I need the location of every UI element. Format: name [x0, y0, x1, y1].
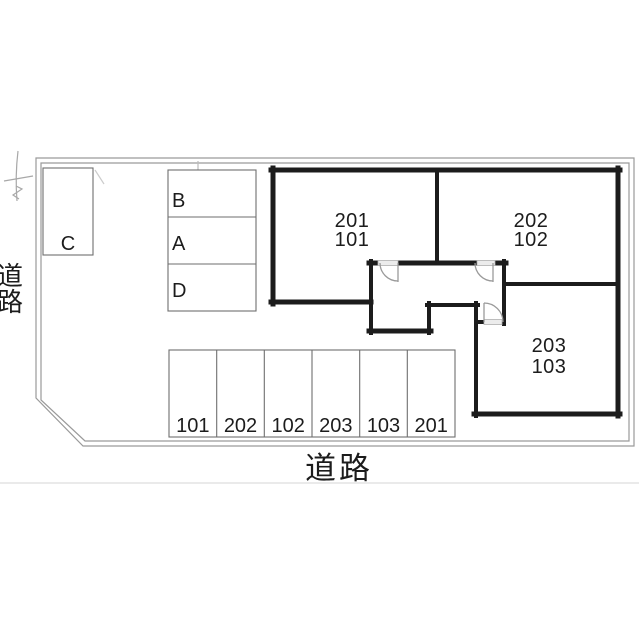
road-label-bottom: 道路	[305, 451, 373, 486]
space-label-d: D	[172, 280, 186, 302]
stall-label-1: 101	[176, 415, 209, 437]
stall-label-5: 103	[367, 415, 400, 437]
space-label-b: B	[172, 190, 185, 212]
road-label-left-char-2: 路	[0, 287, 23, 317]
unit-label-203: 203	[532, 335, 567, 357]
floor-plan-canvas: 201 101 202 102 203 103 C B A D 101 202 …	[0, 0, 639, 640]
door-sill	[477, 261, 495, 266]
door-sill	[378, 261, 398, 266]
stall-label-2: 202	[224, 415, 257, 437]
sketch-faint-stroke	[95, 170, 104, 184]
road-label-left: 道 路	[0, 261, 23, 317]
space-label-a: A	[172, 233, 186, 255]
sketch-hook	[13, 186, 22, 199]
stall-label-4: 203	[319, 415, 352, 437]
stall-label-6: 201	[415, 415, 448, 437]
unit-label-102: 102	[514, 229, 549, 251]
unit-label-101: 101	[335, 229, 370, 251]
building-walls	[271, 168, 620, 416]
site-plan-drawing: 201 101 202 102 203 103 C B A D 101 202 …	[0, 0, 639, 640]
stall-label-3: 102	[272, 415, 305, 437]
doors	[380, 263, 503, 322]
sketch-vertical-line	[16, 151, 18, 201]
door-sill	[484, 320, 502, 325]
space-label-c: C	[61, 233, 75, 255]
unit-label-103: 103	[532, 356, 567, 378]
sketch-crossbar	[4, 176, 33, 181]
parking-areas	[43, 168, 455, 437]
